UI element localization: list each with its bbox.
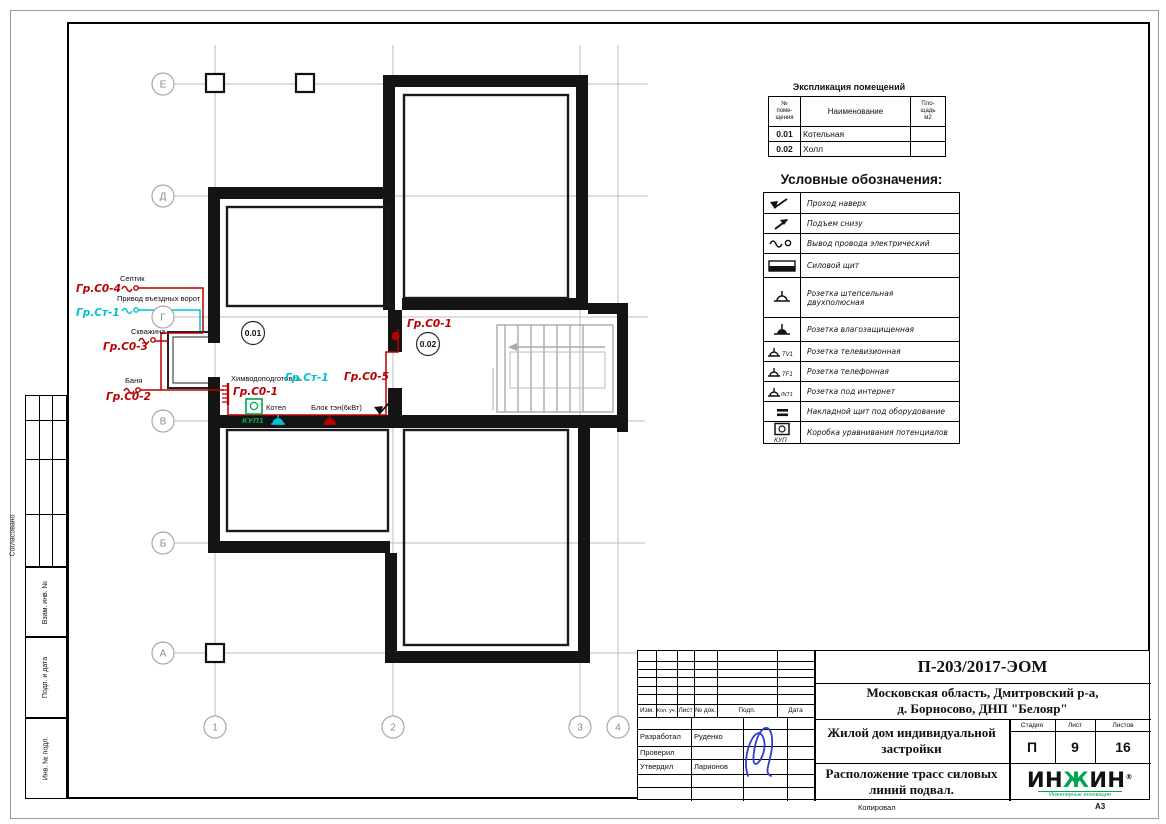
agreed-stamp-label: Согласовано xyxy=(6,500,20,570)
passage-up-symbol xyxy=(374,402,390,415)
project-address: Московская область, Дмитровский р-а, д. … xyxy=(814,683,1151,719)
socket-tv-tag: TV1 xyxy=(782,352,793,358)
col-doc: № док. xyxy=(694,704,717,717)
drawing-sheet: 0.01 0.02 Е Д Г В Б А 1 2 3 4 xyxy=(0,0,1166,824)
legend-label: Розетка телевизионная xyxy=(801,342,959,361)
socket-moistureproof-icon xyxy=(767,321,797,339)
power-panel-symbol xyxy=(222,383,228,405)
doc-number: П-203/2017-ЭОМ xyxy=(814,651,1151,683)
legend-row: TV1 Розетка телевизионная xyxy=(764,341,959,361)
legend-row: Розетка штепсельная двухполюсная xyxy=(764,277,959,317)
sign-date-box: Подп. и дата xyxy=(25,637,67,718)
legend-label: Накладной щит под оборудование xyxy=(801,402,959,421)
grid-col-labels: 1 2 3 4 xyxy=(212,723,621,734)
room-area xyxy=(911,142,946,157)
legend-label: Коробка уравнивания потенциалов xyxy=(801,422,959,443)
logo-part2: Ж xyxy=(1063,768,1089,792)
legend-row: Подъем снизу xyxy=(764,213,959,233)
structural-columns xyxy=(206,74,314,662)
room-name: Холл xyxy=(801,142,911,157)
logo-part1: ИН xyxy=(1027,768,1063,792)
legend-row: INT1 Розетка под интернет xyxy=(764,381,959,401)
legend-label: Силовой щит xyxy=(801,254,959,277)
explication-row: 0.01 Котельная xyxy=(769,127,946,142)
legend-label: Подъем снизу xyxy=(801,214,959,233)
socket-tv-icon: TV1 xyxy=(765,344,799,360)
logo-text: ИНЖИН® xyxy=(1027,767,1133,790)
group-s0-5: Гр.С0-5 xyxy=(344,371,389,383)
role-approved: Утвердил xyxy=(640,762,673,771)
walls xyxy=(208,75,628,663)
room-tag-001: 0.01 xyxy=(245,328,262,338)
col-izm: Изм. xyxy=(638,704,656,717)
group-s0-4: Гр.С0-4 xyxy=(76,283,121,295)
power-panel-icon xyxy=(767,257,797,275)
socket-internet-icon: INT1 xyxy=(765,384,799,400)
room-number: 0.02 xyxy=(769,142,801,157)
legend-row: Накладной щит под оборудование xyxy=(764,401,959,421)
legend-row: TF1 Розетка телефонная xyxy=(764,361,959,381)
logo-subtitle: Инженерные инновации xyxy=(1049,792,1111,798)
legend-label: Розетка под интернет xyxy=(801,382,959,401)
inv-orig-box: Инв. № подл. xyxy=(25,718,67,799)
kup-tag: КУП xyxy=(774,437,787,443)
stage-value: П xyxy=(1009,731,1055,763)
registered-mark: ® xyxy=(1126,773,1134,781)
name-developed: Руденко xyxy=(694,732,723,741)
grid-label-D: Д xyxy=(160,192,167,203)
legend-label: Розетка телефонная xyxy=(801,362,959,381)
inner-rooms xyxy=(227,95,568,645)
grid-row-bubbles xyxy=(152,73,174,664)
staircase xyxy=(493,325,613,412)
socket-two-pole-icon xyxy=(767,287,797,309)
group-s0-3: Гр.С0-3 xyxy=(103,341,148,353)
copied-label: Копировал xyxy=(858,803,896,812)
group-s0-1-riser: Гр.С0-1 xyxy=(407,318,452,330)
kup-box-symbol xyxy=(246,399,262,414)
kup1-label: КУП1 xyxy=(242,417,264,425)
signature xyxy=(736,706,786,784)
sheet-number: 9 xyxy=(1055,731,1095,763)
group-st-1: Гр.Ст-1 xyxy=(76,307,120,319)
grid-label-4: 4 xyxy=(615,723,621,734)
room-number: 0.01 xyxy=(769,127,801,142)
grid-label-E: Е xyxy=(160,80,167,91)
well-label: Скважина xyxy=(131,327,166,336)
sheet-title: Расположение трасс силовых линий подвал. xyxy=(814,763,1009,801)
explication-row: 0.02 Холл xyxy=(769,142,946,157)
grid-label-A: А xyxy=(160,649,167,660)
explication-col-area: Пло- щадь м2 xyxy=(911,97,946,127)
ten-label: Блок тэн(6кВт) xyxy=(311,403,362,412)
sheets-label: Листов xyxy=(1095,719,1151,731)
explication-col-num: № поме- щения xyxy=(769,97,801,127)
role-checked: Проверил xyxy=(640,748,675,757)
grid-label-3: 3 xyxy=(577,723,583,734)
legend-row: Силовой щит xyxy=(764,253,959,277)
rise-from-below-icon xyxy=(767,216,797,232)
grid-label-2: 2 xyxy=(390,723,396,734)
potential-box-icon: КУП xyxy=(767,422,797,443)
surface-panel-icon xyxy=(767,404,797,420)
socket-phone-tag: TF1 xyxy=(782,372,793,378)
legend-row: Розетка влагозащищенная xyxy=(764,317,959,341)
vestibule xyxy=(168,332,208,388)
legend-row: Вывод провода электрический xyxy=(764,233,959,253)
wire-outlet-icon xyxy=(767,236,797,252)
legend-label: Розетка влагозащищенная xyxy=(801,318,959,341)
subst-inv-box: Взам. инв. № xyxy=(25,567,67,637)
col-list: Лист xyxy=(677,704,694,717)
grid-label-1: 1 xyxy=(212,723,218,734)
explication-col-name: Наименование xyxy=(801,97,911,127)
format-label: А3 xyxy=(1095,802,1105,811)
grid-col-bubbles xyxy=(204,716,629,738)
col-kol: Кол. уч. xyxy=(656,704,677,717)
company-logo: ИНЖИН® Инженерные инновации xyxy=(1009,763,1151,801)
name-approved: Ларионов xyxy=(694,762,728,771)
explication-table: № поме- щения Наименование Пло- щадь м2 … xyxy=(768,96,946,157)
legend-title: Условные обозначения: xyxy=(763,172,960,187)
grid-label-B: Б xyxy=(160,539,167,550)
stage-label: Стадия xyxy=(1009,719,1055,731)
socket-phone-icon: TF1 xyxy=(765,364,799,380)
legend-row: КУП Коробка уравнивания потенциалов xyxy=(764,421,959,443)
banya-label: Баня xyxy=(125,376,142,385)
group-s0-2: Гр.С0-2 xyxy=(106,391,151,403)
passage-up-icon xyxy=(767,195,797,211)
sheets-total: 16 xyxy=(1095,731,1151,763)
grid-label-G: Г xyxy=(160,313,166,324)
septic-label: Септик xyxy=(120,274,145,283)
legend-row: Проход наверх xyxy=(764,193,959,213)
logo-part3: ИН xyxy=(1089,768,1125,792)
legend-label: Розетка штепсельная двухполюсная xyxy=(801,278,959,317)
boiler-label: Котел xyxy=(266,403,286,412)
sheet-label: Лист xyxy=(1055,719,1095,731)
group-s0-1-panel: Гр.С0-1 xyxy=(233,386,278,398)
room-area xyxy=(911,127,946,142)
role-developed: Разработал xyxy=(640,732,681,741)
explication-title: Экспликация помещений xyxy=(768,82,930,92)
group-st-1-boiler: Гр.Ст-1 xyxy=(285,372,329,384)
socket-internet-tag: INT1 xyxy=(781,392,793,398)
gate-drive-label: Привод въездных ворот xyxy=(117,294,201,303)
object-title: Жилой дом индивидуальной застройки xyxy=(814,719,1009,763)
room-name: Котельная xyxy=(801,127,911,142)
stair-direction-arrow xyxy=(508,343,517,351)
agreed-table xyxy=(25,395,67,567)
grid-label-V: В xyxy=(160,417,167,428)
legend-label: Вывод провода электрический xyxy=(801,234,959,253)
title-block: Изм. Кол. уч. Лист № док. Подп. Дата Раз… xyxy=(637,650,1150,800)
room-tag-002: 0.02 xyxy=(420,339,437,349)
legend-label: Проход наверх xyxy=(801,193,959,213)
legend-table: Проход наверх Подъем снизу Вывод провода… xyxy=(763,192,960,444)
